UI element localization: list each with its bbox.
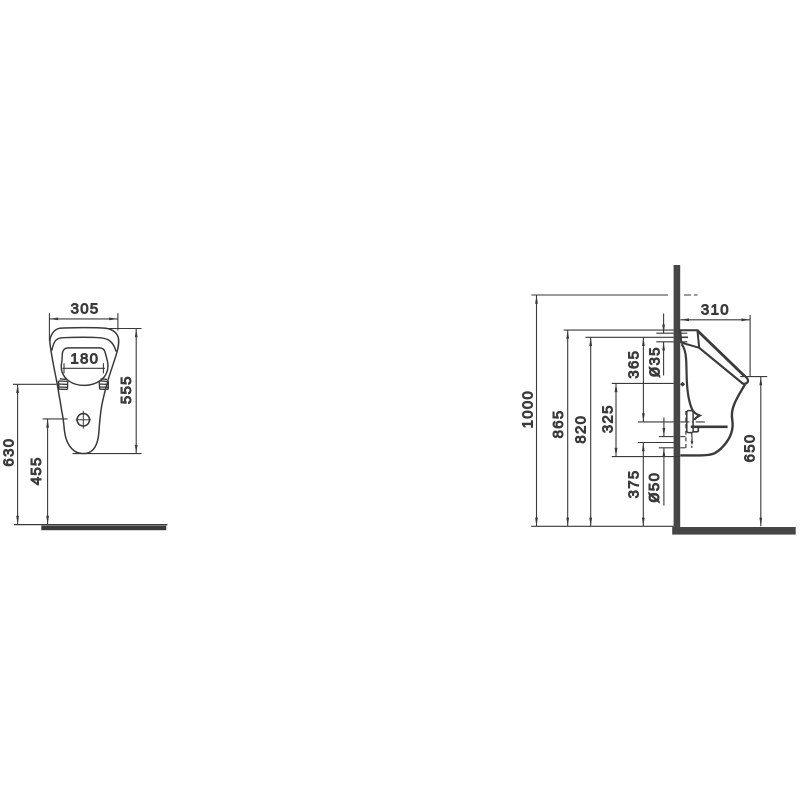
svg-text:630: 630 — [0, 438, 17, 467]
svg-text:ø50: ø50 — [643, 472, 663, 503]
svg-text:820: 820 — [573, 415, 590, 444]
svg-text:455: 455 — [28, 456, 45, 485]
svg-text:365: 365 — [626, 350, 643, 379]
svg-text:180: 180 — [70, 351, 99, 368]
svg-text:650: 650 — [742, 433, 759, 462]
svg-text:375: 375 — [626, 469, 643, 498]
svg-text:ø35: ø35 — [643, 346, 663, 377]
svg-text:555: 555 — [118, 375, 135, 404]
svg-text:325: 325 — [599, 404, 616, 433]
svg-text:310: 310 — [701, 302, 730, 319]
svg-text:1000: 1000 — [519, 390, 536, 429]
svg-text:865: 865 — [550, 409, 567, 438]
svg-text:305: 305 — [71, 300, 100, 317]
